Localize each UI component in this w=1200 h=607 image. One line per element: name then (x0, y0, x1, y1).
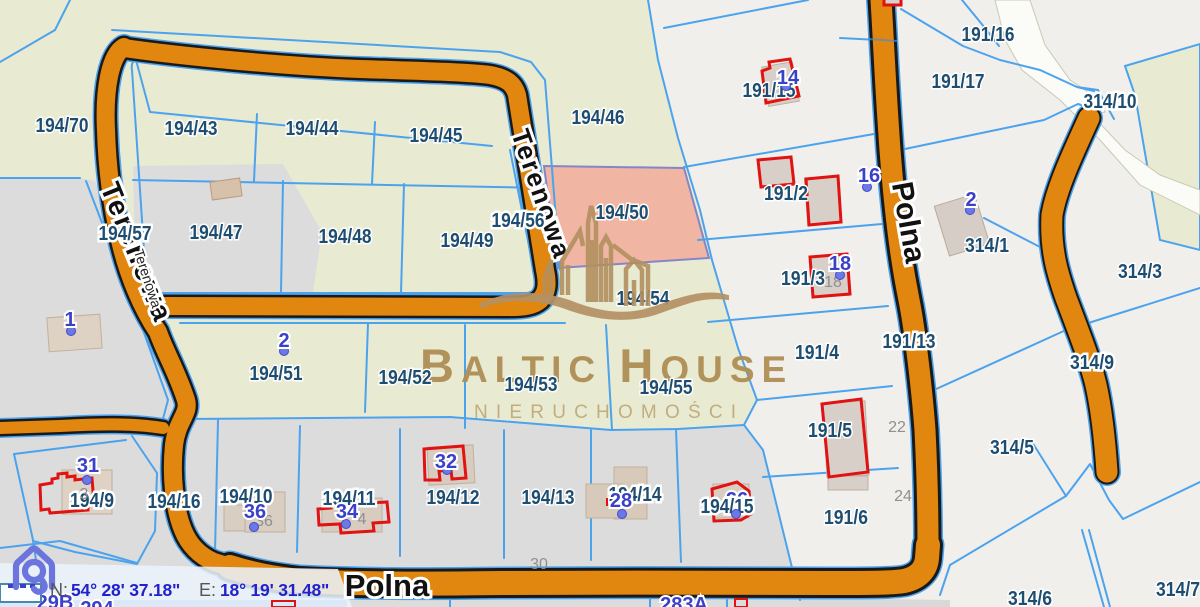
svg-text:18: 18 (829, 253, 851, 275)
svg-text:191/17: 191/17 (932, 71, 985, 93)
svg-text:18° 19' 31.48": 18° 19' 31.48" (220, 580, 329, 600)
svg-text:191/2: 191/2 (764, 183, 808, 205)
svg-text:314/3: 314/3 (1118, 261, 1162, 283)
svg-text:2: 2 (278, 330, 289, 352)
svg-text:194/13: 194/13 (522, 487, 575, 509)
svg-text:194/45: 194/45 (410, 125, 463, 147)
svg-text:191/13: 191/13 (883, 331, 936, 353)
svg-text:194/51: 194/51 (250, 363, 303, 385)
svg-text:194/48: 194/48 (319, 226, 372, 248)
svg-text:191/4: 191/4 (795, 342, 840, 364)
svg-text:194/55: 194/55 (640, 377, 693, 399)
svg-text:194/57: 194/57 (99, 223, 152, 245)
svg-text:1: 1 (64, 309, 75, 331)
svg-text:194/50: 194/50 (596, 202, 649, 224)
svg-text:314/6: 314/6 (1008, 588, 1052, 607)
svg-text:E:: E: (199, 580, 216, 600)
svg-text:22: 22 (888, 419, 906, 436)
svg-text:314/1: 314/1 (965, 235, 1009, 257)
svg-text:194/15: 194/15 (701, 496, 754, 518)
svg-text:194/47: 194/47 (190, 222, 243, 244)
svg-text:194/12: 194/12 (427, 487, 480, 509)
svg-text:314/7: 314/7 (1156, 579, 1200, 601)
svg-text:14: 14 (777, 67, 800, 89)
svg-text:31: 31 (77, 455, 99, 477)
svg-text:283A: 283A (660, 594, 708, 607)
svg-text:314/5: 314/5 (990, 437, 1034, 459)
svg-text:191/6: 191/6 (824, 507, 868, 529)
svg-text:54° 28' 37.18": 54° 28' 37.18" (71, 580, 180, 600)
svg-text:34: 34 (336, 501, 359, 523)
svg-text:194/44: 194/44 (286, 118, 340, 140)
svg-text:194/70: 194/70 (36, 115, 89, 137)
svg-text:3: 3 (80, 486, 89, 503)
svg-text:4: 4 (358, 511, 367, 528)
svg-text:194/52: 194/52 (379, 367, 432, 389)
svg-text:30: 30 (530, 556, 548, 573)
svg-text:Polna: Polna (345, 568, 430, 603)
svg-text:194/43: 194/43 (165, 118, 218, 140)
svg-text:194/49: 194/49 (441, 230, 494, 252)
svg-text:36: 36 (244, 501, 266, 523)
svg-text:194/9: 194/9 (70, 490, 114, 512)
svg-text:191/5: 191/5 (808, 420, 852, 442)
svg-text:28: 28 (610, 490, 632, 512)
svg-text:194/16: 194/16 (148, 491, 201, 513)
svg-text:314/10: 314/10 (1084, 91, 1137, 113)
svg-text:N:: N: (50, 580, 68, 600)
svg-text:191/3: 191/3 (781, 268, 825, 290)
svg-text:24: 24 (894, 488, 912, 505)
svg-text:16: 16 (858, 165, 880, 187)
svg-text:194/53: 194/53 (505, 374, 558, 396)
svg-text:314/9: 314/9 (1070, 352, 1114, 374)
svg-text:NIERUCHOMOŚCI: NIERUCHOMOŚCI (474, 401, 744, 423)
svg-text:32: 32 (435, 451, 457, 473)
svg-text:191/16: 191/16 (962, 24, 1015, 46)
svg-text:194/46: 194/46 (572, 107, 625, 129)
svg-text:194/56: 194/56 (492, 210, 545, 232)
svg-text:2: 2 (965, 189, 976, 211)
